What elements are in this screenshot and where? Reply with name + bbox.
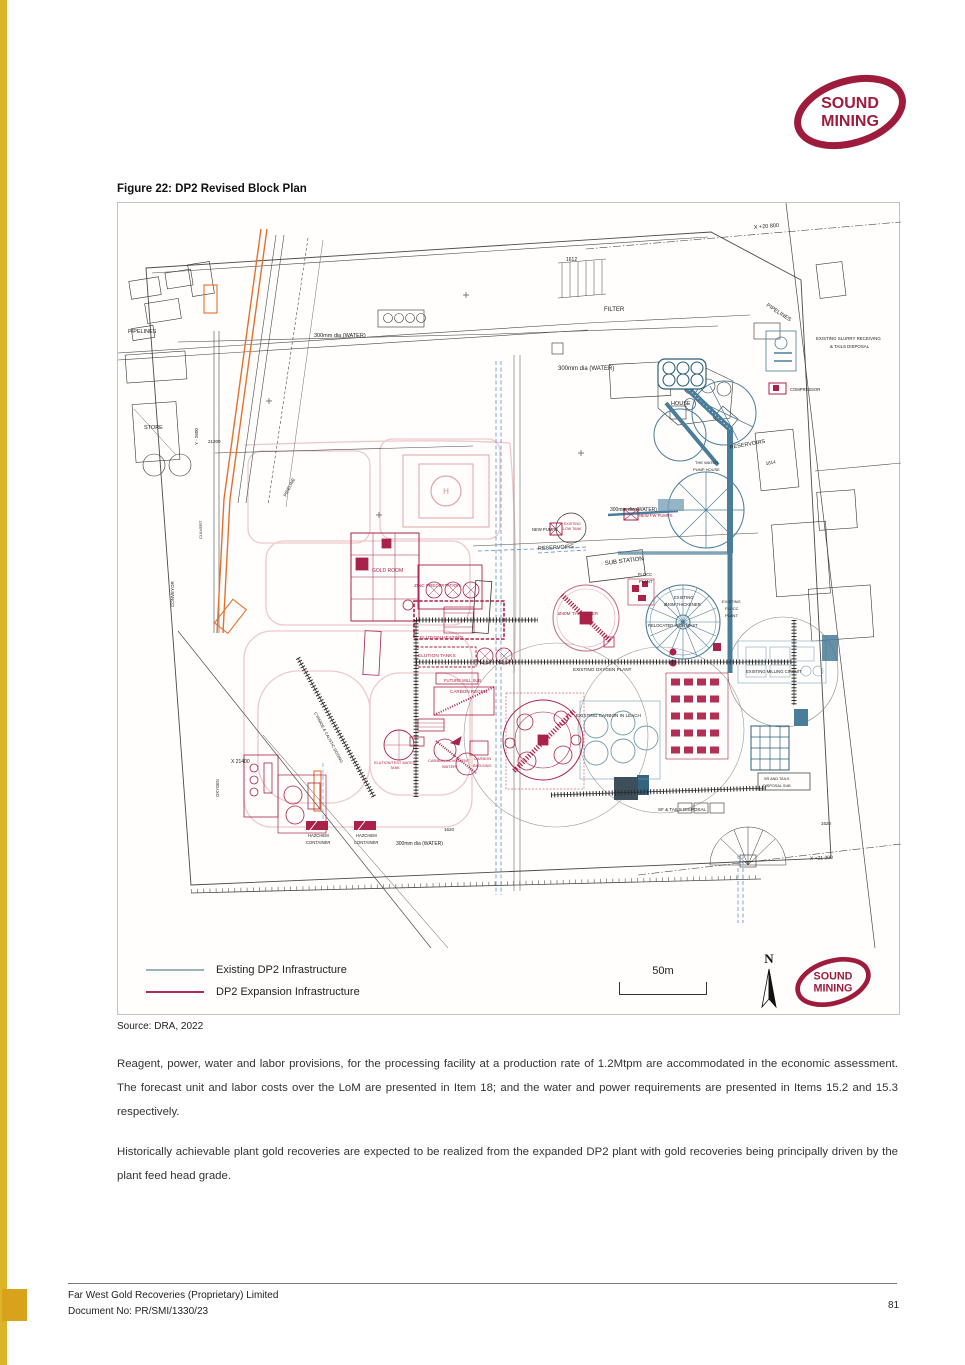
scale-label: 50m	[619, 965, 707, 977]
plan-label: ZINC PRECIPITATION	[414, 583, 461, 588]
conveyor-orange	[204, 229, 321, 811]
plan-label: FUTURE MILL SUB	[444, 678, 481, 683]
plan-label: NEW PUMPS	[532, 527, 558, 532]
plan-label: 1614	[765, 459, 776, 466]
plan-label: DISPOSAL SUB	[763, 784, 791, 788]
footer: Far West Gold Recoveries (Proprietary) L…	[68, 1288, 278, 1320]
footer-gold-square	[2, 1289, 27, 1321]
figure-source: Source: DRA, 2022	[117, 1021, 203, 1032]
plan-label: SUB STATION	[605, 556, 645, 567]
north-arrow-icon	[758, 967, 780, 1009]
plan-label: RESERVOIRS	[538, 544, 575, 552]
plan-label: CYANIDE & CAUSTIC DOSING	[313, 711, 344, 764]
footer-divider	[68, 1283, 897, 1284]
existing-infrastructure-teal	[580, 331, 838, 800]
logo-ellipse	[790, 67, 910, 158]
plan-label: 1620	[821, 821, 832, 826]
plan-label: EXISTING OXYGEN PLANT	[573, 667, 632, 672]
plan-label: PLANT	[639, 579, 653, 584]
plan-label: EXISTING MILLING CIRCUIT	[746, 669, 802, 674]
plan-label: GOLD ROOM	[372, 568, 403, 574]
plan-label: EXISTING	[564, 522, 581, 526]
black-buildings	[125, 259, 874, 867]
plan-label: PIPELINES	[128, 329, 157, 335]
plan-label: H	[443, 487, 449, 496]
plan-label: Y - 2600	[194, 428, 199, 445]
logo-small-line1: SOUND	[814, 970, 853, 982]
logo-line1: SOUND	[821, 95, 879, 112]
plan-label: LOW TANK	[563, 527, 582, 531]
plan-label: FLOCC	[725, 606, 739, 611]
plan-label: HAZCHEM	[308, 833, 329, 838]
plan-label: 300mm dia (WATER)	[558, 366, 614, 372]
plan-label: 300mm dia (WATER)	[610, 507, 657, 513]
figure-legend: Existing DP2 Infrastructure DP2 Expansio…	[146, 959, 360, 1003]
plan-label: ELUTION TANKS	[418, 653, 456, 659]
plan-label: PIPELINE	[282, 477, 296, 497]
scale-bar: 50m	[619, 969, 707, 995]
plan-label: Ø40M THICKENER	[664, 602, 701, 607]
figure-frame: X +20 8001612PIPELINES300mm dia (WATER)3…	[117, 202, 900, 1015]
survey-crosses	[266, 292, 584, 518]
plan-label: NEW FW PUMPS	[639, 513, 673, 518]
plan-label: ELUTION/TEST WATER	[374, 761, 416, 765]
plan-label: BAGGING	[473, 763, 492, 768]
plan-label: FILTER	[604, 307, 625, 313]
plan-label: CONVEYOR	[170, 580, 175, 607]
plan-label: 21200	[208, 439, 221, 444]
plan-label: EXISTING	[722, 599, 741, 604]
footer-doc-no: Document No: PR/SMI/1330/23	[68, 1304, 278, 1320]
page-edge-strip	[0, 0, 7, 1365]
legend-swatch-existing	[146, 969, 204, 971]
body-paragraph-2: Historically achievable plant gold recov…	[117, 1140, 898, 1188]
sound-mining-logo-small: SOUND MINING	[787, 951, 879, 1013]
plan-label: 1620	[444, 827, 455, 832]
plan-label: PIPELINES	[765, 303, 792, 324]
plan-label: HAZCHEM	[356, 833, 377, 838]
legend-row-existing: Existing DP2 Infrastructure	[146, 959, 360, 981]
plan-label: CONTAINER	[306, 840, 330, 845]
plan-label: COMPRESSOR	[790, 387, 820, 392]
north-arrow: N	[756, 951, 782, 1009]
north-label: N	[756, 951, 782, 967]
plan-label: CARBON REGEN	[450, 689, 487, 694]
plan-label: ELUTION HEATING	[420, 635, 463, 641]
logo-line2: MINING	[821, 113, 879, 130]
plan-label: EXISTING CARBON IN LEACH	[576, 713, 641, 718]
plan-label: EXISTING	[674, 595, 694, 600]
plan-label: PUMP HOUSE	[693, 467, 720, 472]
plan-label: CARBON	[474, 756, 491, 761]
figure-title: Figure 22: DP2 Revised Block Plan	[117, 183, 307, 195]
plan-label: CONTAINER	[354, 840, 378, 845]
plan-label: 300mm dia (WATER)	[314, 333, 366, 339]
plan-labels: X +20 8001612PIPELINES300mm dia (WATER)3…	[128, 223, 881, 862]
plan-label: Ø40M THICKENER	[558, 611, 599, 616]
legend-label-existing: Existing DP2 Infrastructure	[216, 964, 347, 976]
plan-label: RESERVOIRS	[729, 439, 766, 451]
plan-label: X +21 200	[810, 855, 833, 862]
plan-label: 300mm dia (WATER)	[396, 841, 443, 847]
plan-label: FLOCC	[638, 572, 652, 577]
legend-row-expansion: DP2 Expansion Infrastructure	[146, 981, 360, 1003]
cable-trench-blue	[323, 361, 743, 923]
plan-label: RELOCATED HIGH MAST	[648, 623, 698, 628]
plan-label: WATER	[442, 764, 456, 769]
plan-label: TANK	[390, 766, 400, 770]
scale-bar-line	[619, 982, 707, 995]
sound-mining-logo: SOUND MINING	[790, 66, 910, 158]
plan-label: X +20 800	[754, 223, 780, 231]
plan-label: HOUSE	[671, 401, 691, 407]
block-plan-drawing: X +20 8001612PIPELINES300mm dia (WATER)3…	[118, 203, 901, 948]
plan-label: OXYGEN	[215, 779, 220, 797]
logo-small-line2: MINING	[814, 982, 853, 994]
plan-label: CARBON MOVEMENT	[428, 758, 470, 763]
plan-label: THE WATER	[695, 460, 718, 465]
page-number: 81	[888, 1300, 899, 1311]
plan-label: CULVERT	[198, 520, 203, 539]
footer-company: Far West Gold Recoveries (Proprietary) L…	[68, 1288, 278, 1304]
body-paragraph-1: Reagent, power, water and labor provisio…	[117, 1052, 898, 1124]
plan-label: PLANT	[725, 613, 738, 618]
plan-label: 1612	[566, 257, 577, 263]
plan-label: SF & TAILS DISPOSAL	[658, 807, 707, 812]
plan-label: STORE	[144, 425, 163, 431]
legend-swatch-expansion	[146, 991, 204, 993]
plan-label: SR AND TAILS	[764, 777, 790, 781]
plan-label: X 21400	[231, 759, 250, 765]
legend-label-expansion: DP2 Expansion Infrastructure	[216, 986, 360, 998]
plan-label: & TAILS DISPOSAL	[830, 344, 870, 349]
plan-label: EXISTING SLURRY RECEIVING	[816, 336, 881, 341]
